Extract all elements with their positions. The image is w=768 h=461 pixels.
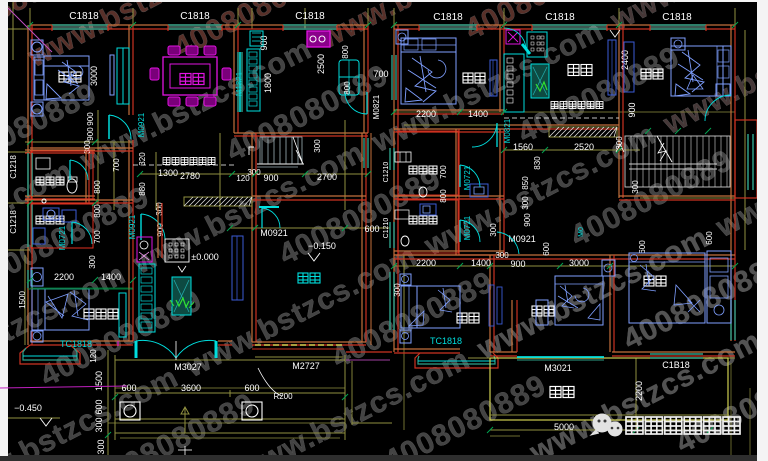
- svg-text:1400: 1400: [468, 109, 488, 119]
- svg-text:C1210: C1210: [383, 218, 390, 239]
- svg-text:800: 800: [343, 81, 352, 95]
- svg-text:600: 600: [705, 231, 714, 245]
- svg-text:2500: 2500: [316, 54, 326, 74]
- svg-text:300: 300: [96, 439, 106, 454]
- svg-text:M0821: M0821: [372, 94, 381, 119]
- svg-text:600: 600: [542, 242, 551, 256]
- svg-text:800: 800: [93, 204, 102, 218]
- svg-text:C1818: C1818: [545, 12, 575, 23]
- svg-text:2200: 2200: [634, 381, 644, 401]
- svg-text:C1818: C1818: [180, 11, 210, 22]
- svg-text:1400: 1400: [471, 258, 491, 268]
- svg-text:M0821: M0821: [503, 118, 512, 143]
- svg-text:C1818: C1818: [433, 12, 463, 23]
- svg-text:700: 700: [373, 69, 388, 79]
- svg-text:900: 900: [523, 213, 532, 227]
- svg-text:M0721: M0721: [58, 225, 67, 250]
- svg-text:−0.450: −0.450: [14, 403, 42, 413]
- svg-text:TC1818: TC1818: [60, 339, 92, 349]
- svg-text:C1818: C1818: [662, 12, 692, 23]
- svg-text:600: 600: [94, 399, 104, 414]
- svg-text:1500: 1500: [18, 291, 27, 309]
- svg-text:700: 700: [93, 230, 102, 244]
- svg-text:300: 300: [247, 168, 261, 177]
- svg-text:−0.150: −0.150: [308, 241, 336, 251]
- svg-text:M3021: M3021: [544, 363, 572, 373]
- svg-text:2700: 2700: [317, 172, 337, 182]
- svg-text:600: 600: [638, 240, 647, 254]
- svg-text:300: 300: [631, 180, 640, 194]
- svg-text:800: 800: [439, 189, 448, 203]
- svg-text:M2727: M2727: [292, 361, 320, 371]
- svg-text:900: 900: [510, 259, 525, 269]
- svg-text:3600: 3600: [181, 383, 201, 393]
- svg-text:5000: 5000: [554, 422, 574, 432]
- svg-text:320: 320: [138, 152, 147, 166]
- svg-text:600: 600: [364, 224, 379, 234]
- svg-text:120: 120: [89, 349, 98, 363]
- svg-text:850: 850: [521, 176, 530, 190]
- svg-text:2780: 2780: [180, 171, 200, 181]
- svg-text:600: 600: [244, 383, 259, 393]
- svg-text:C1B18: C1B18: [662, 360, 690, 370]
- svg-text:300: 300: [489, 223, 498, 237]
- svg-text:M0921: M0921: [260, 228, 288, 238]
- svg-text:830: 830: [533, 156, 542, 170]
- svg-text:300: 300: [495, 251, 509, 260]
- svg-text:300: 300: [313, 139, 322, 153]
- svg-text:800: 800: [341, 45, 350, 59]
- svg-text:2200: 2200: [416, 109, 436, 119]
- svg-text:1560: 1560: [513, 142, 533, 152]
- svg-text:M0: M0: [578, 227, 585, 237]
- svg-text:C1818: C1818: [295, 11, 325, 22]
- svg-text:880: 880: [138, 182, 147, 196]
- svg-text:900: 900: [86, 112, 95, 126]
- svg-text:300: 300: [83, 140, 92, 154]
- svg-text:M0921: M0921: [137, 112, 146, 137]
- svg-text:300: 300: [94, 417, 104, 432]
- svg-text:±0.000: ±0.000: [191, 252, 218, 262]
- svg-text:C1210: C1210: [383, 162, 390, 183]
- svg-text:700: 700: [112, 158, 121, 172]
- svg-text:700: 700: [439, 165, 448, 179]
- svg-text:M0921: M0921: [128, 214, 137, 239]
- svg-text:1800: 1800: [263, 73, 273, 93]
- svg-text:C1218: C1218: [9, 210, 18, 234]
- svg-text:600: 600: [121, 383, 136, 393]
- svg-text:1500: 1500: [94, 371, 104, 391]
- svg-text:900: 900: [263, 173, 278, 183]
- svg-text:2200: 2200: [416, 258, 436, 268]
- svg-text:C1218: C1218: [9, 155, 18, 179]
- svg-text:M0721: M0721: [463, 215, 472, 240]
- svg-text:3000: 3000: [89, 66, 99, 86]
- svg-text:900: 900: [86, 127, 95, 141]
- svg-text:800: 800: [93, 180, 102, 194]
- svg-text:300: 300: [615, 136, 624, 150]
- svg-text:C1818: C1818: [69, 11, 99, 22]
- svg-text:1400: 1400: [101, 272, 121, 282]
- svg-text:1300: 1300: [158, 168, 178, 178]
- svg-text:900: 900: [627, 102, 637, 117]
- svg-text:300: 300: [88, 255, 97, 269]
- svg-text:300: 300: [521, 196, 530, 210]
- svg-text:2400: 2400: [620, 50, 630, 70]
- svg-text:2520: 2520: [574, 142, 594, 152]
- svg-text:900: 900: [259, 35, 269, 50]
- svg-text:300: 300: [155, 202, 164, 216]
- svg-text:2200: 2200: [54, 272, 74, 282]
- svg-text:TC1818: TC1818: [430, 336, 462, 346]
- svg-text:3000: 3000: [569, 258, 589, 268]
- svg-text:M3027: M3027: [174, 362, 202, 372]
